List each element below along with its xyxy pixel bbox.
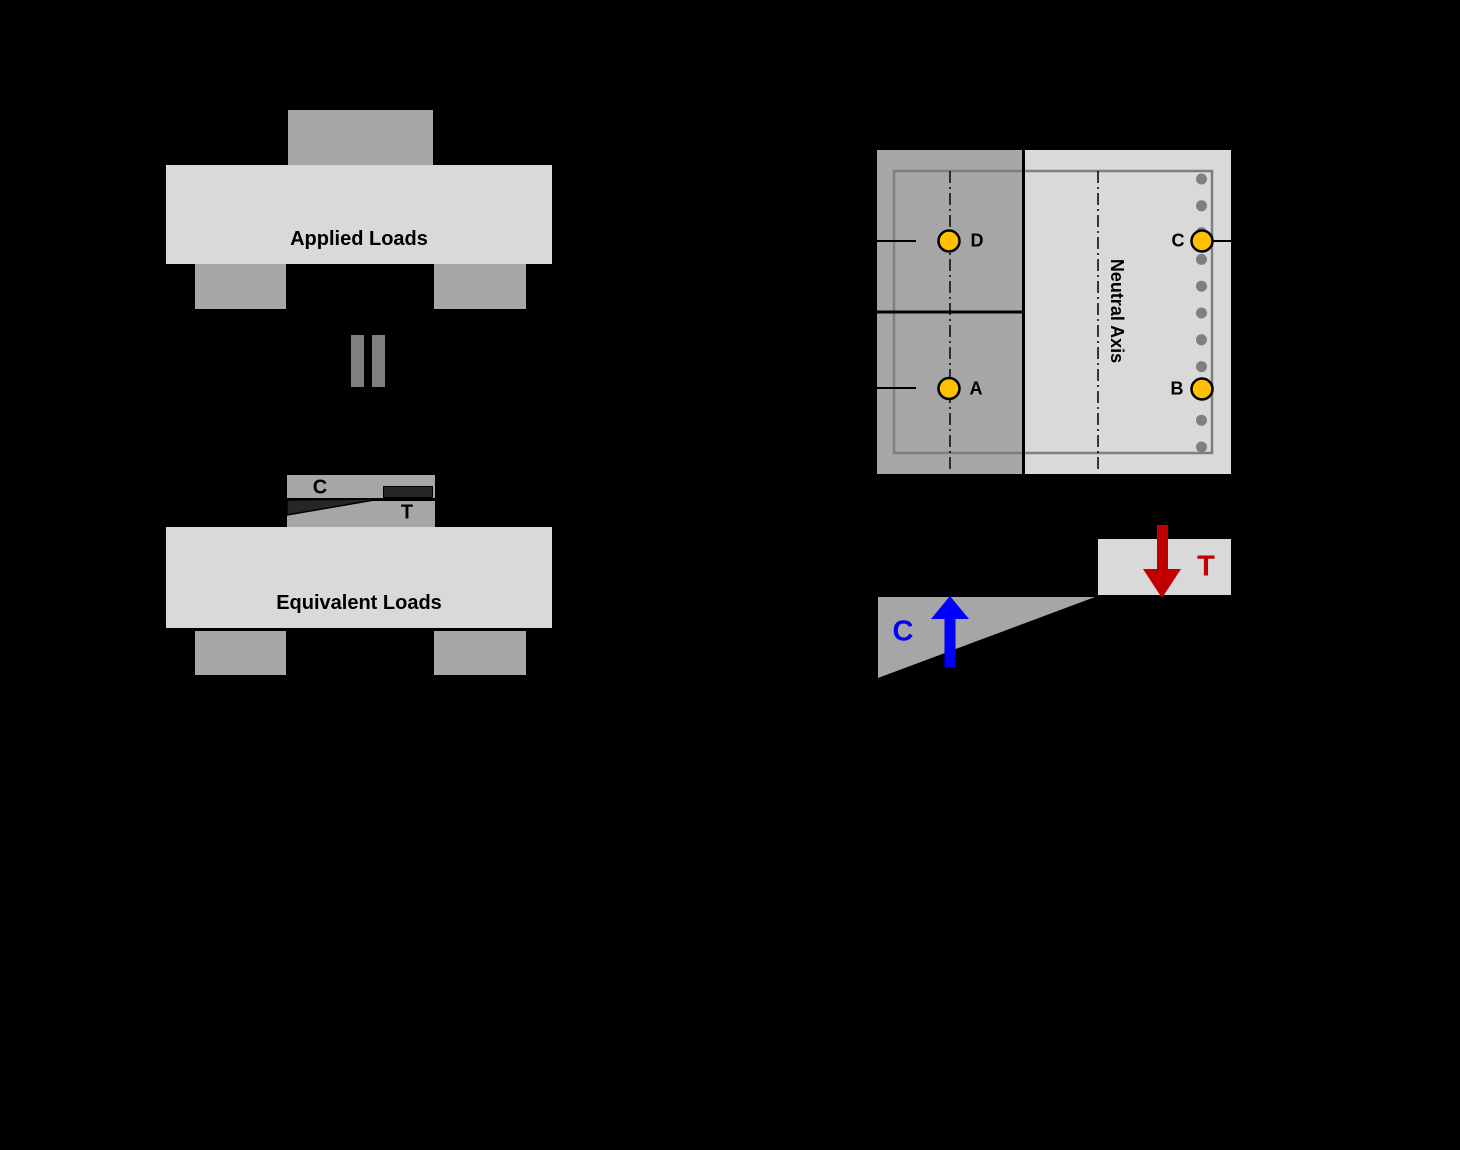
crack-compression-label: C: [313, 477, 327, 500]
rebar-dot: [1196, 361, 1207, 372]
rebar-dot: [1196, 442, 1207, 453]
tension-down-arrow-icon: [1143, 525, 1181, 598]
applied-support-left: [195, 264, 286, 309]
gauge-a-leader-line: [876, 387, 916, 389]
equivalent-support-right: [434, 631, 526, 675]
rebar-dot: [1196, 254, 1207, 265]
applied-loads-label: Applied Loads: [290, 228, 428, 264]
equivalent-loads-label: Equivalent Loads: [276, 592, 442, 628]
crack-detail-block: C T: [287, 475, 435, 527]
equivalent-support-left: [195, 631, 286, 675]
equals-bar-right: [372, 335, 385, 387]
rebar-dot: [1196, 281, 1207, 292]
rebar-dot: [1196, 200, 1207, 211]
gauge-a-label: A: [970, 379, 983, 400]
applied-loads-beam: Applied Loads: [166, 165, 552, 264]
equivalent-loads-beam: Equivalent Loads: [166, 527, 552, 628]
force-couple-diagram: [870, 520, 1250, 690]
neutral-axis-label: Neutral Axis: [1105, 251, 1129, 371]
force-tension-label: T: [1197, 551, 1215, 584]
gauge-marker-d: [939, 231, 960, 252]
gauge-marker-b: [1192, 379, 1213, 400]
gauge-marker-c: [1192, 231, 1213, 252]
figure-canvas: Applied Loads C T Equivalent Loads: [0, 0, 1460, 1150]
gauge-d-leader-line: [876, 240, 916, 242]
rebar-dot: [1196, 174, 1207, 185]
crack-tension-label: T: [401, 502, 413, 525]
gauge-c-label: C: [1172, 231, 1185, 252]
cross-section-diagram: [877, 150, 1231, 474]
gauge-c-leader-line: [1212, 240, 1234, 242]
rebar-dot: [1196, 334, 1207, 345]
applied-point-load-block: [288, 110, 433, 165]
gauge-marker-a: [939, 378, 960, 399]
gauge-d-label: D: [971, 231, 984, 252]
gauge-b-label: B: [1171, 379, 1184, 400]
applied-support-right: [434, 264, 526, 309]
force-compression-label: C: [893, 616, 914, 649]
rebar-dot: [1196, 308, 1207, 319]
rebar-dot: [1196, 415, 1207, 426]
equals-bar-left: [351, 335, 364, 387]
